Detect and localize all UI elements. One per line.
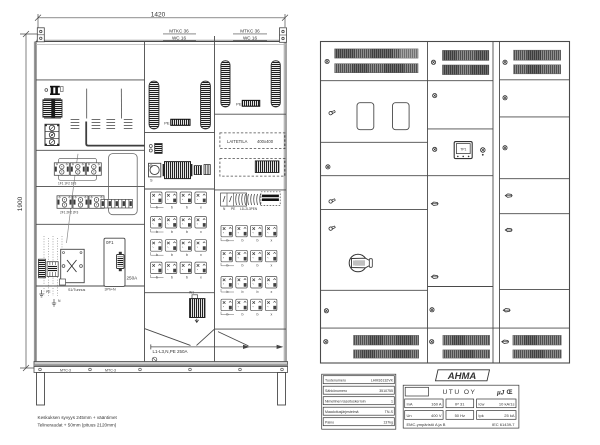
svg-text:LAITETILA: LAITETILA [227, 139, 248, 144]
svg-text:250A: 250A [127, 276, 139, 281]
svg-text:1: 1 [391, 399, 393, 403]
svg-text:InA: InA [407, 401, 413, 406]
svg-text:TN-S: TN-S [385, 410, 394, 414]
svg-text:µJ: µJ [496, 389, 505, 396]
svg-text:MTKC 36: MTKC 36 [169, 29, 189, 34]
svg-text:Maadoitusjärjestelmä: Maadoitusjärjestelmä [325, 410, 359, 414]
svg-text:3Ph+N: 3Ph+N [105, 288, 116, 292]
svg-text:IEC 61439-7: IEC 61439-7 [492, 422, 515, 427]
svg-text:b: b [242, 264, 244, 268]
svg-text:160 A: 160 A [431, 401, 442, 406]
svg-text:UTU OY: UTU OY [443, 389, 477, 396]
svg-text:0F1: 0F1 [106, 240, 114, 245]
svg-text:x: x [271, 264, 273, 268]
svg-text:3510755: 3510755 [379, 389, 393, 393]
svg-text:Telineraudat + 50mm (pituus 21: Telineraudat + 50mm (pituus 2120mm) [38, 423, 117, 428]
svg-text:400 V: 400 V [431, 413, 442, 418]
svg-text:AHMA: AHMA [447, 371, 477, 382]
svg-text:L1-L3,N,PE 250A: L1-L3,N,PE 250A [153, 349, 188, 354]
svg-text:Keskuksen syvyys 245mm + väänt: Keskuksen syvyys 245mm + vääntimet [38, 415, 118, 420]
svg-text:LHM16132VK: LHM16132VK [371, 378, 394, 382]
svg-text:S1/Tunnus: S1/Tunnus [68, 288, 85, 292]
svg-text:1420: 1420 [151, 12, 166, 19]
svg-text:50 Hz: 50 Hz [455, 413, 465, 418]
svg-text:1900: 1900 [17, 196, 24, 211]
svg-text:b: b [257, 239, 259, 243]
svg-text:PE: PE [46, 290, 51, 294]
svg-text:W1: W1 [189, 291, 194, 295]
svg-text:Un: Un [407, 413, 412, 418]
svg-text:2F1 2F2 2F3: 2F1 2F2 2F3 [60, 211, 78, 215]
svg-text:b: b [257, 313, 259, 317]
svg-text:x: x [200, 205, 202, 209]
svg-text:IP 31: IP 31 [455, 401, 465, 406]
svg-text:x: x [200, 253, 202, 257]
svg-text:x: x [271, 239, 273, 243]
svg-text:Icw: Icw [478, 401, 484, 406]
svg-text:b: b [257, 264, 259, 268]
svg-text:b: b [171, 253, 173, 257]
svg-text:x: x [200, 230, 202, 234]
svg-text:MTKC 36: MTKC 36 [240, 29, 260, 34]
svg-text:137kg: 137kg [383, 420, 393, 424]
svg-text:b: b [186, 275, 188, 279]
svg-text:x: x [271, 313, 273, 317]
svg-text:PE: PE [164, 121, 170, 126]
svg-text:L1L2L3PEN: L1L2L3PEN [240, 207, 258, 211]
svg-text:WC 16: WC 16 [172, 35, 186, 40]
svg-text:b: b [186, 230, 188, 234]
svg-text:Œ: Œ [507, 390, 513, 396]
svg-text:b: b [242, 239, 244, 243]
svg-text:Sähkönumero: Sähkönumero [325, 389, 347, 393]
svg-text:b: b [257, 290, 259, 294]
svg-text:MTC-3: MTC-3 [60, 369, 71, 373]
svg-text:Nimellinen tasoituskerroin: Nimellinen tasoituskerroin [325, 399, 366, 403]
svg-text:PE: PE [231, 207, 235, 211]
svg-text:b: b [242, 313, 244, 317]
svg-text:EMC-ympäristö A ja B: EMC-ympäristö A ja B [407, 422, 446, 427]
svg-text:TP1: TP1 [460, 147, 466, 151]
svg-text:Ipk: Ipk [478, 413, 483, 418]
svg-text:Paino: Paino [325, 420, 334, 424]
svg-text:b: b [171, 205, 173, 209]
svg-text:x: x [271, 290, 273, 294]
svg-text:b: b [186, 253, 188, 257]
svg-text:25 kA: 25 kA [504, 413, 515, 418]
svg-text:b: b [171, 275, 173, 279]
svg-text:b: b [242, 290, 244, 294]
svg-text:1F1 1F2 1F3: 1F1 1F2 1F3 [58, 182, 76, 186]
svg-text:x: x [200, 275, 202, 279]
svg-text:WC 16: WC 16 [243, 35, 257, 40]
svg-text:Tuotenumero: Tuotenumero [325, 378, 346, 382]
svg-text:b: b [186, 205, 188, 209]
svg-text:MTC-3: MTC-3 [105, 369, 116, 373]
svg-text:10 kA/1s: 10 kA/1s [499, 401, 515, 406]
svg-text:b: b [171, 230, 173, 234]
svg-text:400x400: 400x400 [257, 139, 274, 144]
svg-text:PE: PE [236, 101, 242, 106]
